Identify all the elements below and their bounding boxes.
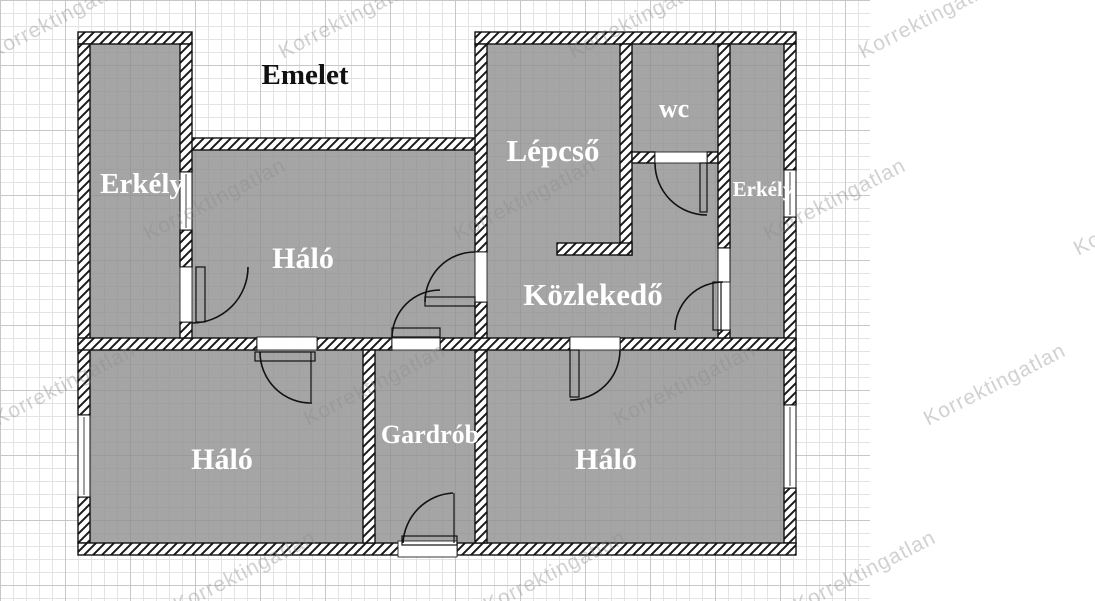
room-label-wc: wc: [659, 94, 689, 123]
wall-lepcso-wc: [620, 44, 632, 255]
wall-left-outer-upper: [78, 44, 90, 415]
wall-balcony-right-3: [180, 322, 192, 338]
wall-right-outer-2: [784, 217, 796, 405]
window-kozlekedo-erkely: [718, 248, 730, 282]
wall-erkely-right-2: [718, 330, 730, 338]
room-label-halo-bottom-right: Háló: [575, 443, 637, 476]
wall-balcony-right-2: [180, 230, 192, 267]
wall-wc-bottom-1: [632, 152, 655, 163]
wall-top-right-block: [475, 32, 796, 44]
wall-mid-2: [317, 338, 392, 350]
room-label-halo-bottom-left: Háló: [191, 443, 253, 476]
floorplan-drawing: Emelet Erkély Háló Lépcső wc Erkély Közl…: [0, 0, 1095, 601]
wall-halo-lepcso-2: [475, 302, 487, 338]
wall-right-outer-3: [784, 488, 796, 543]
wall-balcony-top: [78, 32, 192, 44]
room-label-gardrob: Gardrób: [381, 420, 479, 449]
floor-title: Emelet: [262, 59, 349, 91]
wall-halo-top: [180, 138, 487, 150]
room-label-kozlekedo: Közlekedő: [523, 277, 663, 312]
room-label-erkely-right: Erkély: [733, 177, 794, 201]
floorplan-screenshot: Emelet Erkély Háló Lépcső wc Erkély Közl…: [0, 0, 1095, 601]
wall-left-outer-lower: [78, 497, 90, 543]
wall-halo-lepcso-1: [475, 44, 487, 252]
wall-mid-4: [620, 338, 796, 350]
wall-mid-3: [440, 338, 570, 350]
wall-mid-1: [78, 338, 257, 350]
wall-bottom-left: [78, 543, 400, 555]
wall-bottom-right: [457, 543, 796, 555]
room-label-erkely-left: Erkély: [100, 168, 184, 200]
wall-halo-gardrob: [363, 350, 375, 543]
wall-erkely-right-1: [718, 44, 730, 248]
room-label-lepcso: Lépcső: [507, 133, 600, 168]
wall-balcony-right-1: [180, 44, 192, 172]
wall-wc-bottom-2: [707, 152, 718, 163]
wall-right-outer-1: [784, 44, 796, 170]
wall-stair-stub: [557, 243, 632, 255]
room-label-halo-top: Háló: [272, 242, 334, 275]
